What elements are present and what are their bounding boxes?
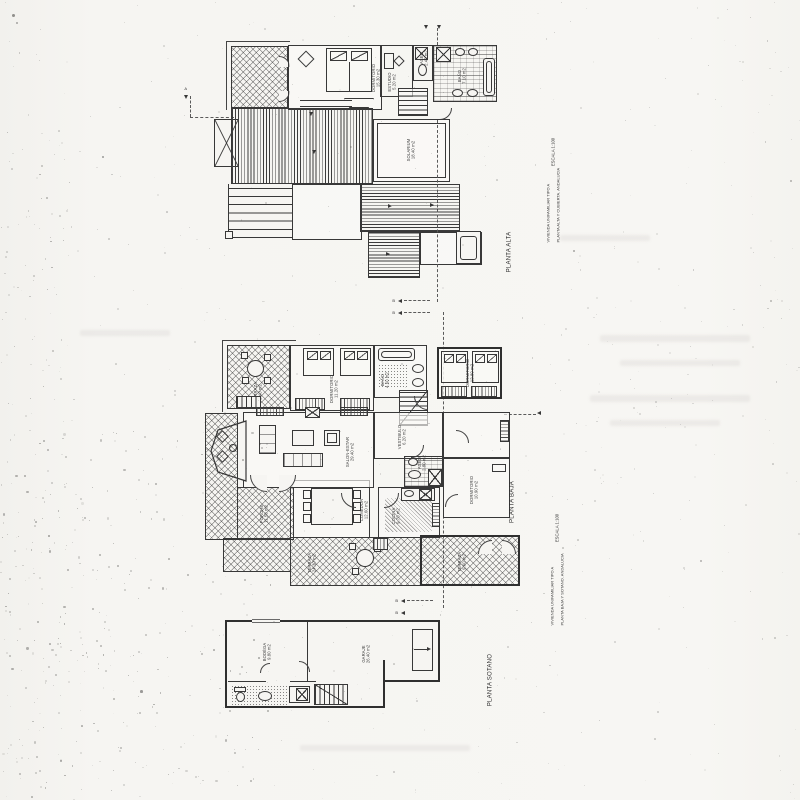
scan-smudge (590, 395, 750, 402)
project-line: VIVIENDA UNIFAMILIAR TIPO A (546, 184, 551, 243)
sink (258, 691, 272, 701)
scan-smudge (600, 335, 750, 342)
stair-cut-line (314, 684, 348, 705)
plan-title-baja: PLANTA BAJA (509, 481, 516, 523)
scan-smudge (620, 360, 740, 366)
scan-smudge (300, 745, 470, 751)
scan-smudge (610, 420, 720, 426)
room-label: GARAJE 26.40 m2 (361, 645, 370, 663)
sheet-line: PLANTA ALTA Y CUBIERTA. ANDALUCIA (556, 168, 561, 243)
room-label: BODEGA 9.80 m2 (262, 643, 271, 662)
project-line: VIVIENDA UNIFAMILIAR TIPO A (550, 567, 555, 626)
scanned-floorplan-sheet: DORMITORIO 15.30 m2 ESTUDIO 5.20 m2 ASEO… (0, 0, 800, 800)
plan-title-alta: PLANTA ALTA (506, 232, 513, 273)
arrow-icon (427, 647, 431, 651)
scan-smudge (80, 330, 170, 336)
titleblock-bottom: VIVIENDA UNIFAMILIAR TIPO A PLANTA BAJA … (545, 551, 565, 626)
scan-smudge (560, 235, 650, 241)
partition-wall (290, 681, 316, 682)
partition-wall (307, 622, 308, 681)
arrow-shaft (414, 649, 427, 650)
partition-wall (228, 681, 266, 682)
stove-icon (296, 688, 308, 701)
scale-note-bottom: ESCALA 1:100 (555, 514, 560, 542)
window-gap (252, 619, 280, 623)
titleblock-top: VIVIENDA UNIFAMILIAR TIPO A PLANTA ALTA … (541, 168, 561, 243)
scale-note-top: ESCALA 1:100 (551, 138, 556, 166)
plan-title-sotano: PLANTA SOTANO (487, 654, 494, 706)
toilet (236, 692, 245, 702)
sheet-line: PLANTA BAJA Y SOTANO. ANDALUCIA (560, 553, 565, 625)
